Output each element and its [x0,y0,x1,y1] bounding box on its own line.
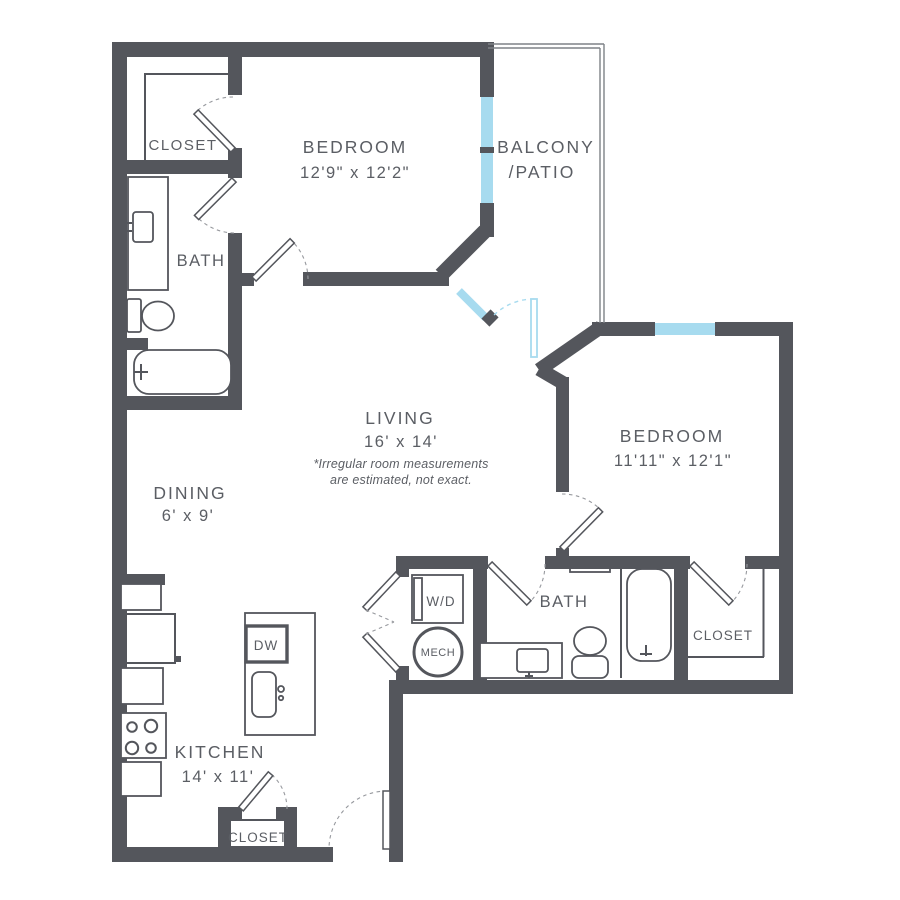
balcony-label-2: /PATIO [509,162,576,182]
living-label: LIVING [365,408,434,428]
laundry-bifold-doors [363,572,400,672]
balcony-sliding-door [459,291,494,322]
counter-lower [121,762,161,796]
mech-label: MECH [421,647,455,659]
bath2-toilet-tank [572,656,608,678]
dining-dims: 6' x 9' [162,507,215,525]
bath1-toilet-icon [142,302,174,331]
closet2-label: CLOSET [693,628,753,643]
bath2-toilet-icon [574,627,606,655]
island-sink [252,672,276,717]
entry-door [329,791,390,849]
bedroom1-balcony-wall [441,42,494,275]
balcony-label: BALCONY [497,137,595,157]
bath1-sink [133,212,153,242]
counter-upper [121,584,161,610]
closet2-shelf-line [686,568,764,657]
bedroom2-top-wall [592,322,779,336]
bedroom1-dims: 12'9" x 12'2" [300,164,410,182]
bath2-tub [627,569,671,661]
kitchen-label: KITCHEN [175,742,266,762]
bath1-door [194,178,236,233]
floor-plan: CLOSET BEDROOM 12'9" x 12'2" BALCONY /PA… [0,0,900,900]
closet2-door [690,562,747,605]
bath1-fixtures [126,177,231,394]
bath1-tub [134,350,231,394]
bedroom2-dims: 11'11" x 12'1" [614,452,732,470]
balcony-railing [488,44,604,323]
bath1-toilet-tank [127,299,141,332]
refrigerator [122,614,175,663]
dishwasher-label: DW [254,638,279,653]
bedroom1-window-lower [481,153,493,203]
hallway-walls [470,377,793,569]
bedroom1-window-upper [481,97,493,147]
laundry-label: W/D [426,594,455,609]
living-note-1: *Irregular room measurements [313,457,488,471]
bedroom1-bottom-wall [242,272,449,286]
living-dims: 16' x 14' [364,433,438,451]
bath2-door [488,562,545,605]
bedroom2-label: BEDROOM [620,426,724,446]
counter-mid [121,668,163,704]
closet1-label: CLOSET [148,137,217,154]
refrigerator-handle [174,656,181,662]
kitchen-closet-label: CLOSET [228,830,288,845]
living-bedroom2-diagonal-wall [539,327,601,383]
bedroom2-door [560,494,603,551]
bath1-label: BATH [177,252,226,270]
laundry-fixtures [412,575,463,676]
living-note-2: are estimated, not exact. [330,473,472,487]
floor-plan-svg: CLOSET BEDROOM 12'9" x 12'2" BALCONY /PA… [0,0,900,900]
bedroom2-window [655,323,715,335]
kitchen-fixtures [121,584,315,796]
bedroom1-label: BEDROOM [303,137,407,157]
bath2-sink [517,649,548,672]
balcony-door [493,299,537,357]
dining-label: DINING [153,483,226,503]
kitchen-dims: 14' x 11' [182,768,255,786]
bedroom1-door [252,239,308,281]
sliding-glass-panel [459,291,486,318]
bath2-label: BATH [540,593,589,611]
